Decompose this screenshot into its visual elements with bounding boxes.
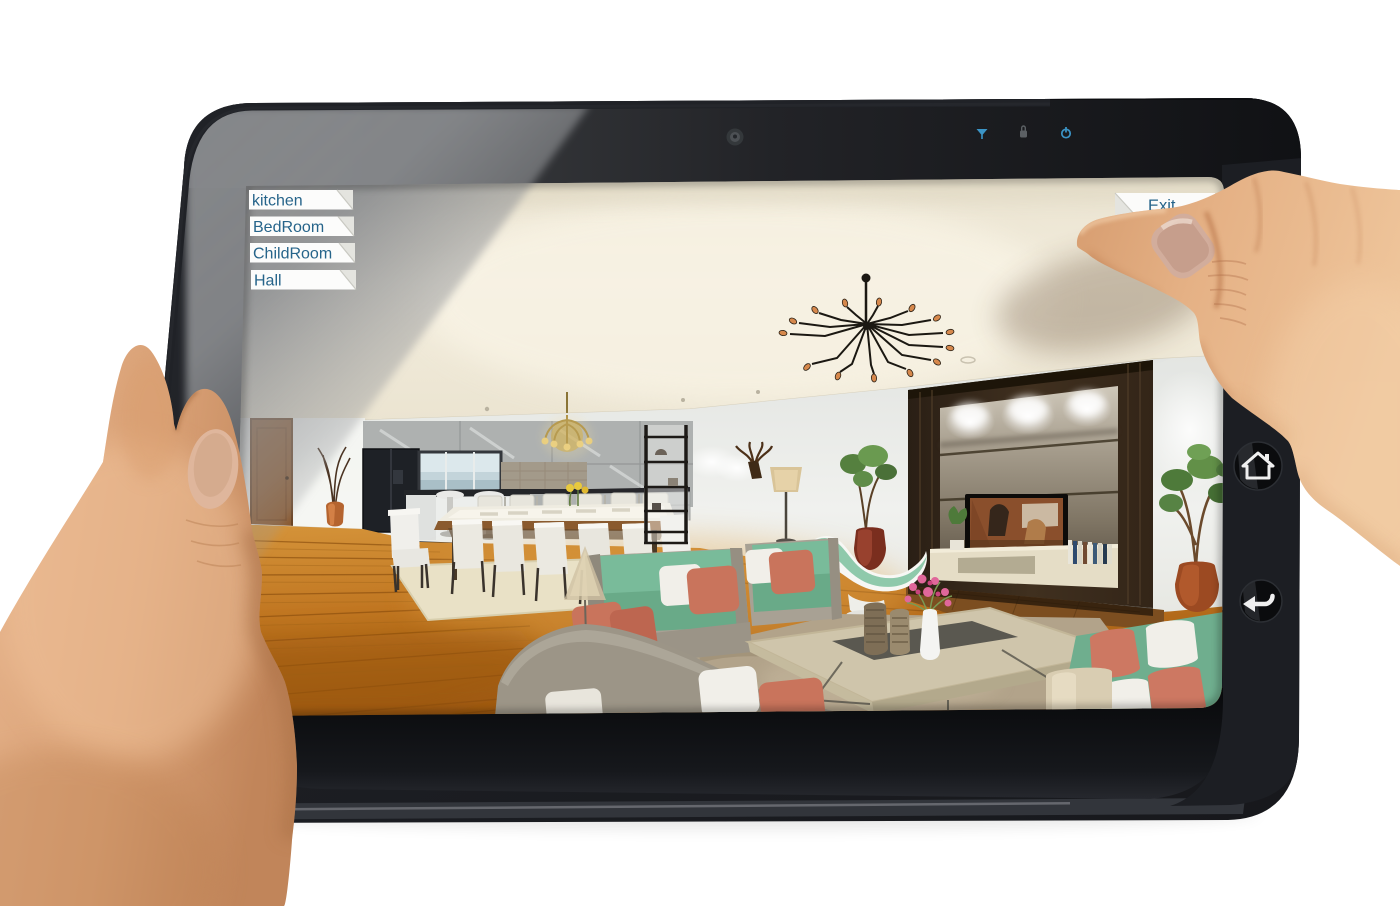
svg-text:kitchen: kitchen bbox=[252, 193, 303, 210]
svg-text:ChildRoom: ChildRoom bbox=[253, 246, 332, 263]
svg-text:BedRoom: BedRoom bbox=[253, 219, 324, 236]
svg-text:Hall: Hall bbox=[254, 273, 282, 290]
